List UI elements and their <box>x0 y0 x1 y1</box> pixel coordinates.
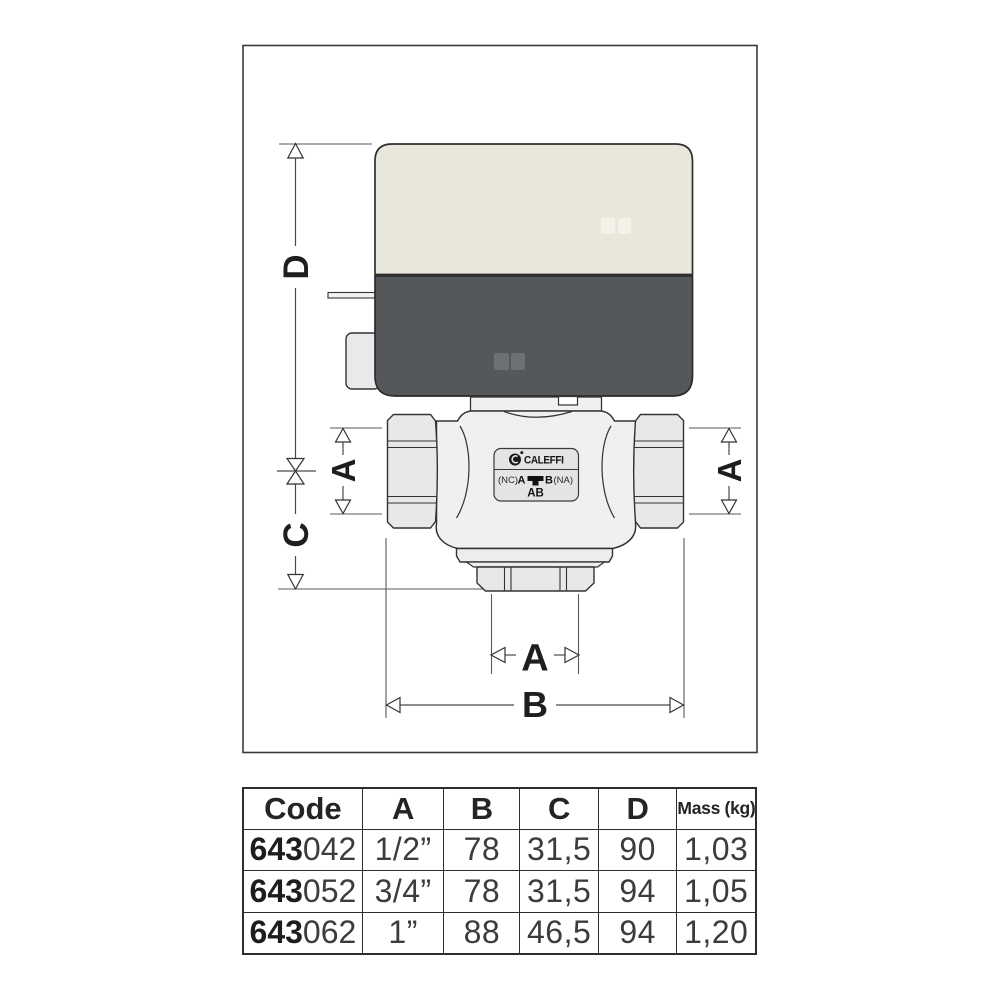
svg-text:A: A <box>518 475 526 487</box>
svg-text:CALEFFI: CALEFFI <box>524 455 564 467</box>
svg-text:AB: AB <box>527 488 544 500</box>
svg-text:D: D <box>277 254 316 279</box>
svg-text:A: A <box>325 459 362 483</box>
svg-text:A: A <box>521 638 548 680</box>
svg-text:A: A <box>711 459 748 483</box>
svg-text:B: B <box>545 475 553 487</box>
svg-text:C: C <box>277 522 316 547</box>
svg-text:(NC): (NC) <box>498 475 518 486</box>
svg-text:(NA): (NA) <box>554 475 574 486</box>
svg-text:B: B <box>522 684 548 725</box>
